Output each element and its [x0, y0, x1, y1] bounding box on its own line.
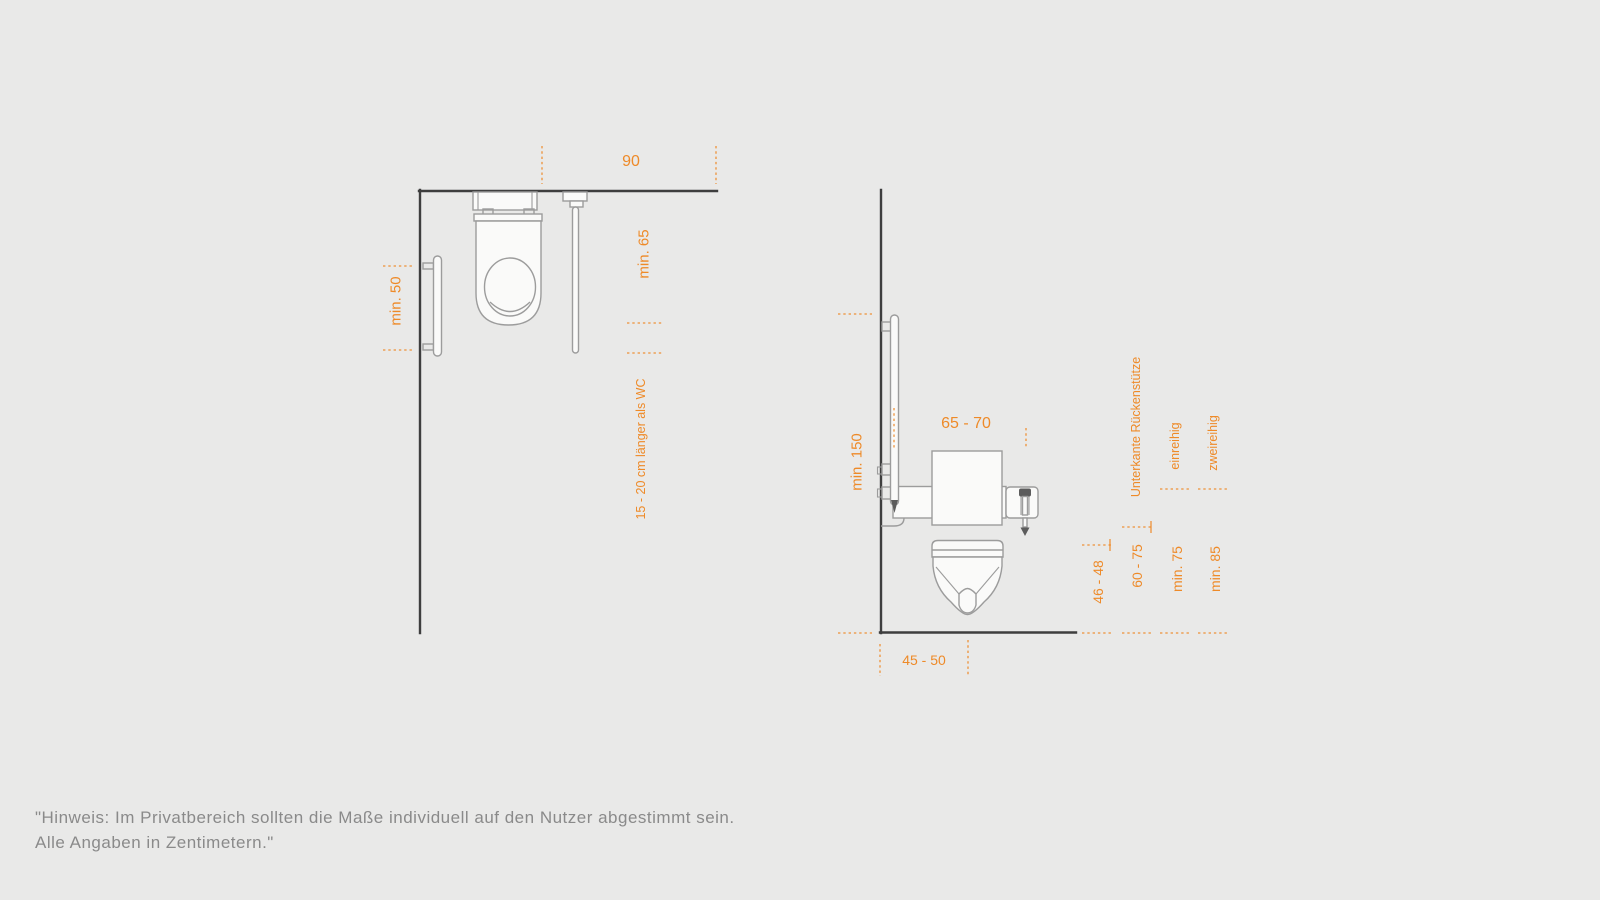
footnote-line-1: "Hinweis: Im Privatbereich sollten die M…	[35, 805, 735, 830]
label-zweireihig: zweireihig	[1206, 415, 1220, 471]
dim-seat-height-46-48: 46 - 48	[1090, 560, 1106, 604]
wc-seat-band	[474, 214, 542, 221]
diagram-linework	[0, 0, 1600, 900]
footnote-line-2: Alle Angaben in Zentimetern."	[35, 830, 735, 855]
label-einreihig: einreihig	[1168, 422, 1182, 469]
grab-bar-mount-bottom	[423, 344, 434, 350]
wc-seat-front	[932, 541, 1003, 558]
dim-double-row-min-85: min. 85	[1207, 546, 1223, 592]
rail-wall-mount-low	[882, 487, 891, 499]
wc-front-view	[932, 541, 1003, 615]
support-rail-bar-topview	[573, 207, 579, 353]
top-view-drawing	[383, 146, 717, 633]
dim-backrest-60-75: 60 - 75	[1129, 544, 1145, 588]
dim-width-90: 90	[622, 153, 640, 171]
label-unterkante-rueckenstuetze: Unterkante Rückenstütze	[1129, 357, 1143, 497]
rail-wall-mount-top	[882, 322, 891, 331]
support-rail-joint-topview	[570, 201, 583, 207]
wc-cistern-topview	[473, 192, 537, 210]
wc-bowl-front-tongue	[959, 589, 976, 614]
support-rail-elbow	[881, 518, 904, 526]
dim-depth-min-65: min. 65	[636, 229, 653, 278]
backrest-box	[932, 451, 1002, 525]
grab-bar-topview	[434, 256, 442, 356]
dim-rail-longer-than-wc: 15 - 20 cm länger als WC	[634, 378, 648, 519]
dim-single-row-min-75: min. 75	[1169, 546, 1185, 592]
dim-rail-length-65-70: 65 - 70	[941, 415, 991, 433]
toilet-paper-holder	[1019, 489, 1031, 537]
dim-grab-bar-min-50: min. 50	[388, 276, 405, 325]
bathroom-dimension-diagram: 90 min. 65 min. 50 15 - 20 cm länger als…	[0, 0, 1600, 900]
rail-wall-mount-mid	[882, 464, 891, 475]
dim-height-min-150: min. 150	[849, 433, 866, 491]
wc-bowl-opening	[485, 258, 536, 316]
grab-bar-mount-top	[423, 263, 434, 269]
footnote: "Hinweis: Im Privatbereich sollten die M…	[35, 805, 735, 855]
support-rail-mount-topview	[563, 192, 587, 201]
dim-depth-45-50: 45 - 50	[902, 652, 946, 668]
